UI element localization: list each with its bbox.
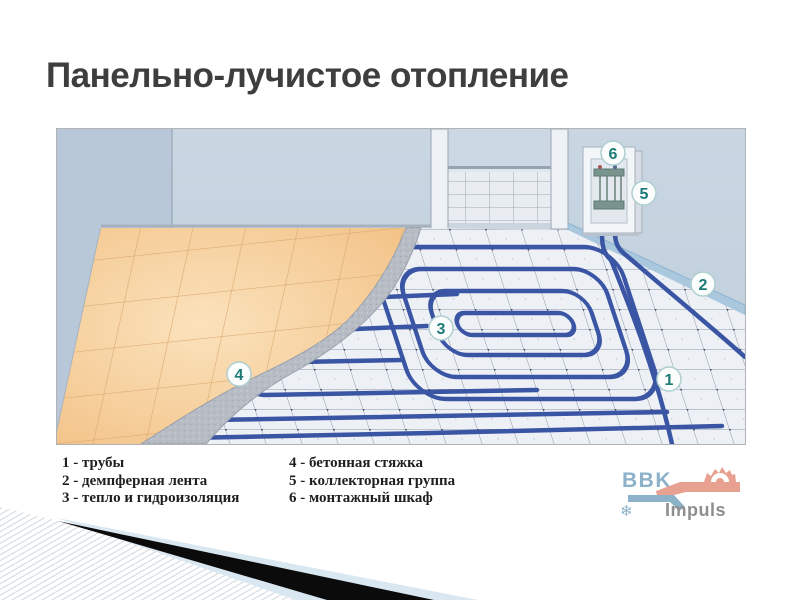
legend-item-6: 6 - монтажный шкаф [289, 490, 455, 508]
slide-title: Панельно-лучистое отопление [46, 56, 569, 96]
legend-column-2: 4 - бетонная стяжка 5 - коллекторная гру… [289, 455, 455, 508]
callout-4: 4 [227, 362, 251, 386]
bbk-impuls-logo: BBK ❄ Impuls [612, 458, 752, 523]
callout-6: 6 [601, 141, 625, 165]
svg-text:2: 2 [699, 277, 708, 294]
heating-diagram-figure: 1 2 3 4 5 [56, 128, 746, 445]
doorway-back-wall [448, 129, 551, 172]
svg-text:6: 6 [609, 146, 618, 163]
legend-column-1: 1 - трубы 2 - демпферная лента 3 - тепло… [62, 455, 239, 508]
callout-5: 5 [632, 181, 656, 205]
legend-item-3: 3 - тепло и гидроизоляция [62, 490, 239, 508]
presentation-slide: Панельно-лучистое отопление [0, 0, 800, 600]
doorway-wall-base-line [448, 166, 551, 169]
logo-product-text: Impuls [665, 500, 726, 520]
heating-diagram: 1 2 3 4 5 [57, 129, 745, 444]
snowflake-icon: ❄ [620, 503, 633, 520]
callout-1: 1 [657, 367, 681, 391]
svg-text:1: 1 [665, 372, 674, 389]
doorway-floor-tiles [448, 172, 551, 223]
svg-text:4: 4 [235, 367, 244, 384]
svg-text:5: 5 [640, 186, 649, 203]
legend-item-4: 4 - бетонная стяжка [289, 455, 455, 473]
door-threshold [448, 223, 551, 229]
legend-item-1: 1 - трубы [62, 455, 239, 473]
sun-icon [704, 467, 736, 482]
svg-text:3: 3 [437, 321, 446, 338]
callout-3: 3 [429, 316, 453, 340]
legend-item-5: 5 - коллекторная группа [289, 473, 455, 491]
doorway-skirting [448, 169, 551, 172]
callout-2: 2 [691, 272, 715, 296]
doorway [431, 129, 568, 229]
cabinet-base [583, 233, 639, 236]
legend-item-2: 2 - демпферная лента [62, 473, 239, 491]
